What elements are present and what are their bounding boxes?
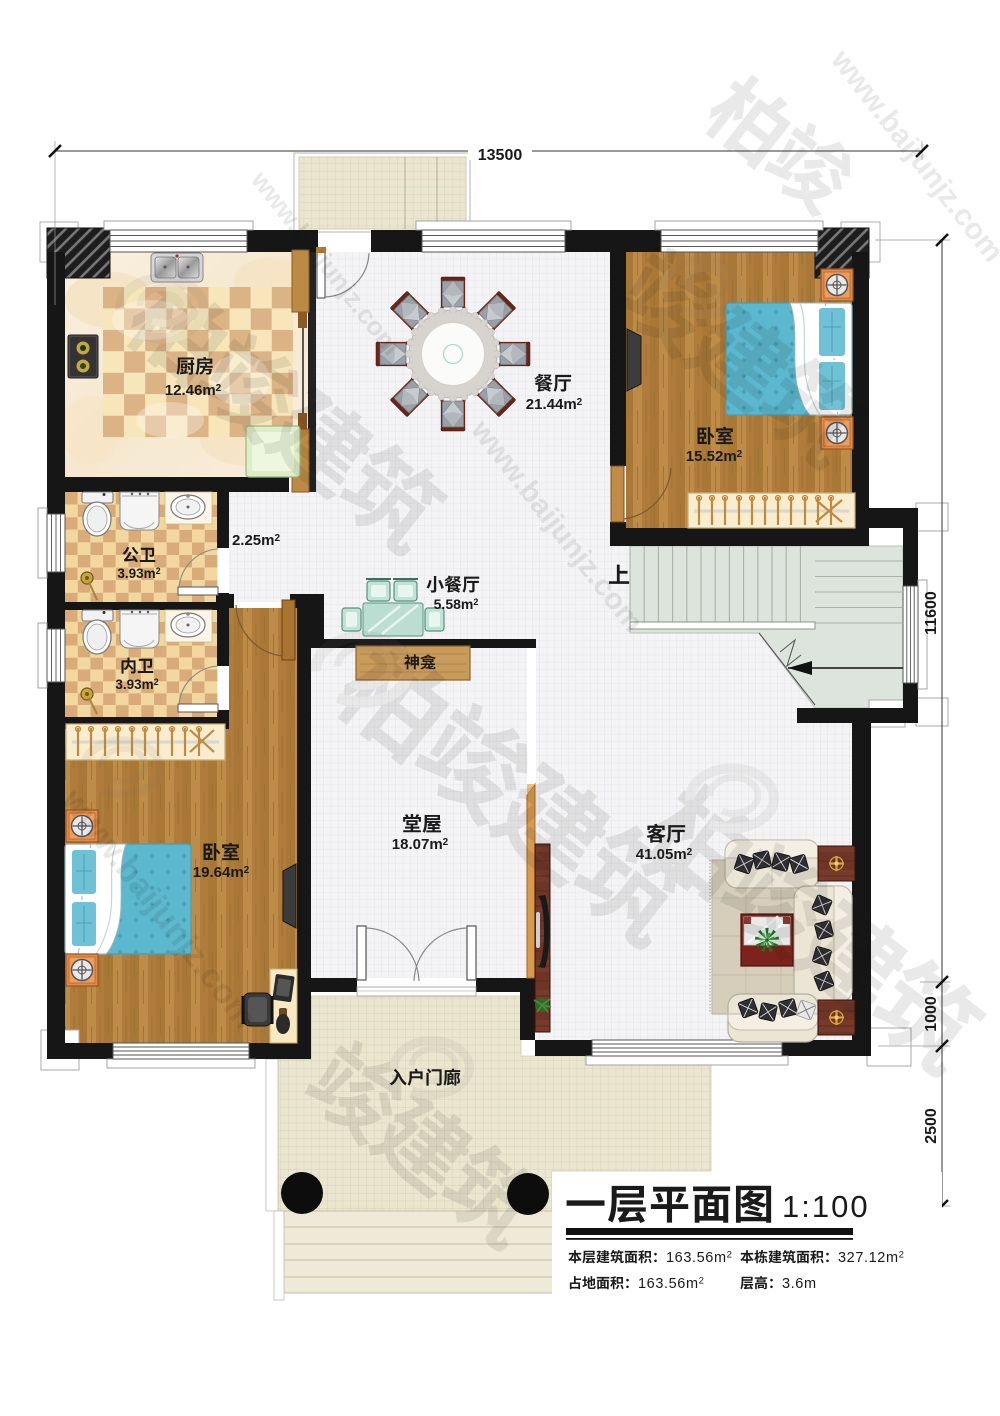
svg-text:1:100: 1:100 — [782, 1189, 870, 1224]
svg-text:堂屋: 堂屋 — [402, 808, 442, 837]
svg-text:餐厅: 餐厅 — [534, 369, 572, 396]
svg-text:41.05m2: 41.05m2 — [636, 846, 693, 863]
svg-text:1000: 1000 — [923, 996, 940, 1032]
svg-text:卧室: 卧室 — [202, 838, 240, 865]
svg-text:2500: 2500 — [923, 1108, 940, 1144]
svg-text:本栋建筑面积：327.12m2: 本栋建筑面积：327.12m2 — [740, 1247, 904, 1267]
svg-text:上: 上 — [608, 558, 630, 590]
svg-text:占地面积：163.56m2: 占地面积：163.56m2 — [568, 1273, 704, 1293]
svg-text:层高：3.6m: 层高：3.6m — [740, 1273, 817, 1293]
svg-text:厨房: 厨房 — [176, 352, 214, 379]
svg-text:内卫: 内卫 — [120, 652, 154, 677]
svg-text:2.25m2: 2.25m2 — [232, 532, 281, 549]
svg-text:15.52m2: 15.52m2 — [686, 448, 743, 465]
svg-text:12.46m2: 12.46m2 — [165, 382, 222, 399]
svg-text:18.07m2: 18.07m2 — [392, 836, 449, 853]
svg-text:神龛: 神龛 — [404, 649, 436, 673]
svg-text:客厅: 客厅 — [646, 818, 686, 847]
svg-text:一层平面图: 一层平面图 — [565, 1171, 775, 1231]
svg-text:入户门廊: 入户门廊 — [389, 1064, 461, 1090]
svg-text:小餐厅: 小餐厅 — [426, 571, 480, 597]
svg-text:13500: 13500 — [478, 147, 523, 164]
svg-text:5.58m2: 5.58m2 — [434, 596, 479, 612]
svg-text:11600: 11600 — [923, 591, 940, 635]
svg-text:卧室: 卧室 — [696, 422, 734, 449]
svg-text:19.64m2: 19.64m2 — [193, 864, 250, 881]
svg-text:21.44m2: 21.44m2 — [526, 396, 583, 413]
svg-text:3.93m2: 3.93m2 — [117, 566, 160, 581]
svg-text:3.93m2: 3.93m2 — [115, 677, 158, 692]
svg-text:公卫: 公卫 — [122, 541, 156, 566]
svg-text:本层建筑面积：163.56m2: 本层建筑面积：163.56m2 — [568, 1247, 732, 1267]
